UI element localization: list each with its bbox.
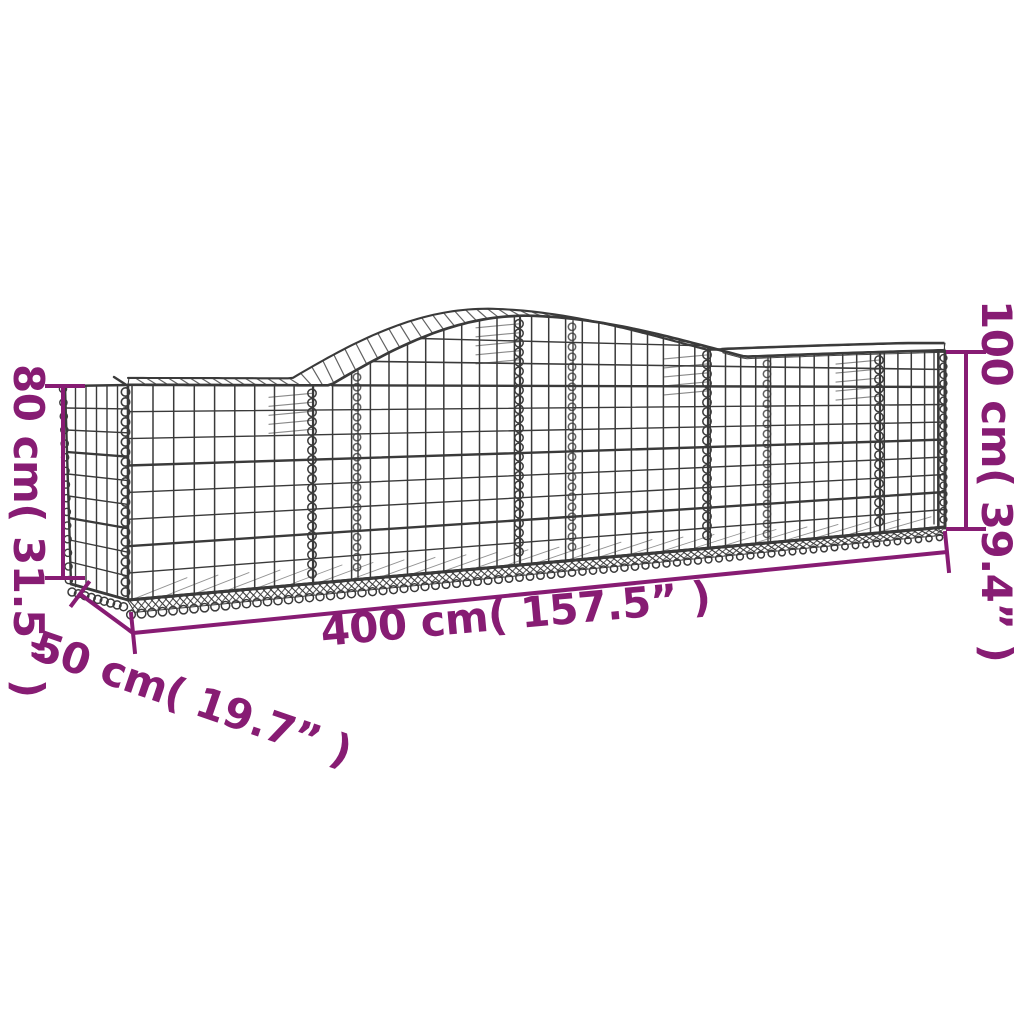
gabion-basket-illustration: [59, 309, 946, 619]
product-diagram-canvas: 80 cm( 31.5” ) 100 cm( 39.4” ) 400 cm( 1…: [0, 0, 1024, 1024]
dimension-height-right: 100 cm( 39.4” ): [946, 300, 1021, 662]
dimension-label-depth: 50 cm( 19.7” ): [27, 621, 358, 776]
dimension-label-length: 400 cm( 157.5” ): [318, 572, 712, 656]
dimension-depth: 50 cm( 19.7” ): [27, 581, 358, 776]
gabion-product-illustration: 80 cm( 31.5” ) 100 cm( 39.4” ) 400 cm( 1…: [0, 0, 1024, 1024]
dimension-label-height-right: 100 cm( 39.4” ): [972, 300, 1021, 662]
